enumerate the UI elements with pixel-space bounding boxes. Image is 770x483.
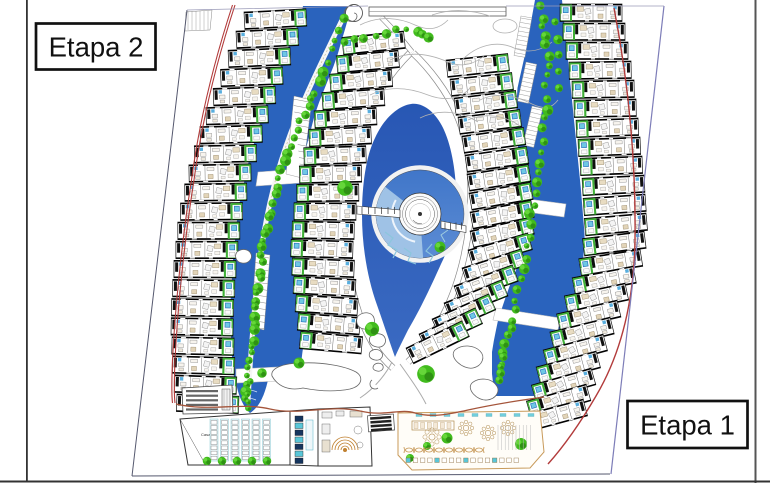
svg-text:Casa: Casa [201,432,211,437]
svg-text:Etapa 1: Etapa 1 [640,410,735,441]
svg-text:Etapa 2: Etapa 2 [49,32,144,63]
